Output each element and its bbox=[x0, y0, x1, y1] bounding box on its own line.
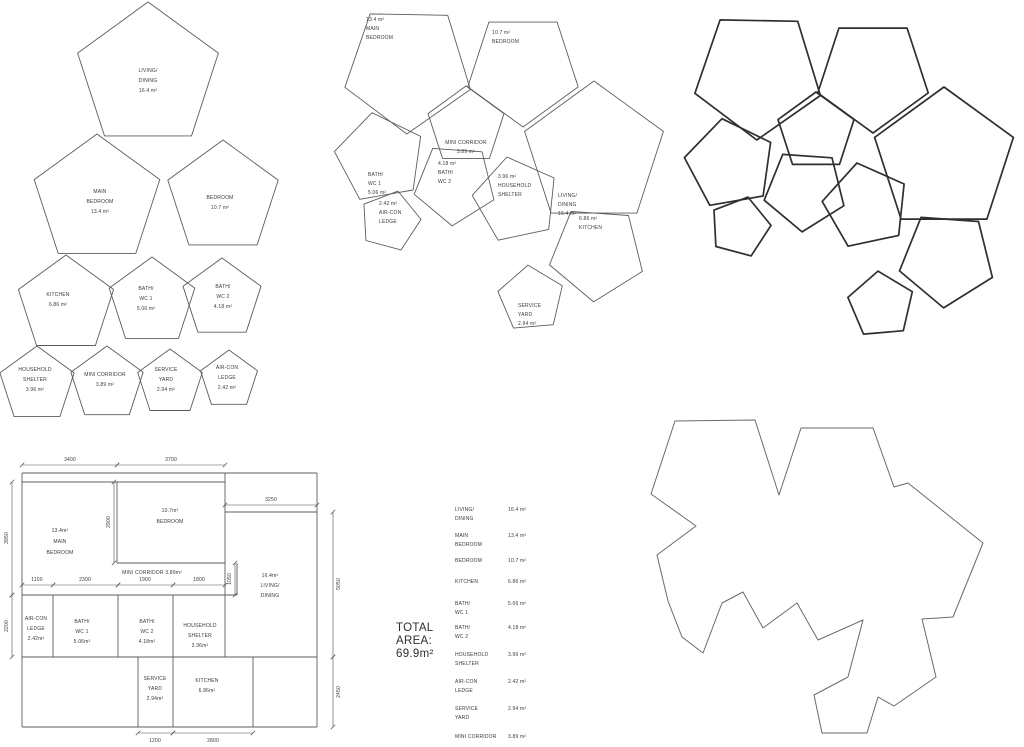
exploded-air-con-ledge: AIR-CONLEDGE2.42 m² bbox=[201, 350, 258, 404]
room-label-household-shelter-line-1: HOUSEHOLD bbox=[183, 623, 217, 629]
label-air-con-ledge-line-2: AIR-CON bbox=[379, 210, 402, 216]
dim-label-1900-line-1: 1900 bbox=[139, 577, 151, 583]
label-air-con-ledge-line-3: LEDGE bbox=[379, 219, 397, 225]
area-row-label-line-1: SERVICE bbox=[455, 706, 479, 712]
assembled-mini-corridor: MINI CORRIDOR3.89 m² bbox=[428, 86, 504, 158]
room-label-kitchen-line-2: 6.86m² bbox=[199, 688, 216, 694]
dim-label-1100-line-1: 1100 bbox=[31, 577, 43, 583]
assembled-kitchen: 6.86 m²KITCHEN bbox=[550, 211, 643, 302]
pentagon-mini-corridor bbox=[71, 346, 143, 415]
pentagon-bath-wc-1 bbox=[684, 119, 770, 206]
label-household-shelter-line-3: SHELTER bbox=[498, 192, 522, 198]
area-row-2: MAINBEDROOM13.4 m² bbox=[455, 533, 526, 548]
label-main-bedroom-line-1: MAIN bbox=[93, 189, 106, 195]
label-bath-wc-1-line-3: 5.06 m² bbox=[137, 306, 155, 312]
exploded-main-bedroom: MAINBEDROOM13.4 m² bbox=[34, 134, 160, 253]
area-row-label-line-1: BEDROOM bbox=[455, 558, 482, 564]
area-row-1: LIVING/DINING16.4 m² bbox=[455, 507, 526, 522]
label-bath-wc-1-line-3: 5.06 m² bbox=[368, 190, 386, 196]
label-household-shelter-line-1: HOUSEHOLD bbox=[18, 367, 52, 373]
pentagon-bath-wc-2 bbox=[764, 154, 844, 232]
label-mini-corridor-line-1: MINI CORRIDOR bbox=[445, 140, 487, 146]
label-bath-wc-2-line-1: 4.18 m² bbox=[438, 161, 456, 167]
area-row-value-line-1: 13.4 m² bbox=[508, 533, 526, 539]
assembled-service-yard: SERVICEYARD2.94 m² bbox=[498, 265, 562, 328]
area-row-value-line-1: 10.7 m² bbox=[508, 558, 526, 564]
area-row-3: BEDROOM10.7 m² bbox=[455, 558, 526, 564]
dim-label-1800-line-1: 1800 bbox=[193, 577, 205, 583]
label-household-shelter-line-1: 3.96 m² bbox=[498, 174, 516, 180]
dim-label-2800-line-1: 2800 bbox=[207, 738, 219, 744]
area-row-label-line-2: LEDGE bbox=[455, 688, 473, 694]
exploded-kitchen: KITCHEN6.86 m² bbox=[18, 255, 113, 346]
exploded-view: LIVING/DINING16.4 m²MAINBEDROOM13.4 m²BE… bbox=[0, 2, 278, 417]
label-air-con-ledge-line-3: 2.42 m² bbox=[218, 385, 236, 391]
outline-cluster-view bbox=[684, 20, 1013, 334]
room-label-bath-wc-2-line-3: 4.18m² bbox=[139, 639, 156, 645]
pentagon-main-bedroom bbox=[695, 20, 821, 140]
label-main-bedroom-line-1: 13.4 m² bbox=[366, 17, 384, 23]
label-household-shelter-line-2: SHELTER bbox=[23, 377, 47, 383]
area-table: LIVING/DINING16.4 m²MAINBEDROOM13.4 m²BE… bbox=[455, 507, 526, 740]
label-household-shelter-line-2: HOUSEHOLD bbox=[498, 183, 532, 189]
dim-2800: 2800 bbox=[171, 731, 255, 744]
dim-label-3950-line-1: 3950 bbox=[4, 532, 10, 544]
outline-service-yard bbox=[848, 271, 912, 334]
room-label-living-dining-line-3: DINING bbox=[261, 593, 280, 599]
assembled-bedroom: 10.7 m²BEDROOM bbox=[468, 22, 578, 127]
label-service-yard-line-3: 2.94 m² bbox=[518, 321, 536, 327]
outline-mini-corridor bbox=[778, 92, 854, 164]
label-air-con-ledge-line-1: 2.42 m² bbox=[379, 201, 397, 207]
area-row-label-line-1: AIR-CON bbox=[455, 679, 478, 685]
label-bedroom-line-2: BEDROOM bbox=[492, 39, 519, 45]
drawing-canvas: LIVING/DINING16.4 m²MAINBEDROOM13.4 m²BE… bbox=[0, 0, 1024, 747]
pentagon-bedroom bbox=[168, 140, 278, 245]
area-row-7: HOUSEHOLDSHELTER3.96 m² bbox=[455, 652, 526, 667]
assembled-bath-wc-2: 4.18 m²BATH/WC 2 bbox=[414, 148, 494, 226]
label-kitchen-line-1: KITCHEN bbox=[46, 292, 69, 298]
area-row-label-line-1: LIVING/ bbox=[455, 507, 474, 513]
pentagon-mini-corridor bbox=[778, 92, 854, 164]
area-row-10: MINI CORRIDOR3.89 m² bbox=[455, 734, 526, 740]
label-mini-corridor-line-2: 3.89 m² bbox=[96, 382, 114, 388]
area-row-8: AIR-CONLEDGE2.42 m² bbox=[455, 679, 526, 694]
label-main-bedroom-line-2: BEDROOM bbox=[86, 199, 113, 205]
pentagon-living-dining bbox=[525, 81, 664, 213]
exploded-mini-corridor: MINI CORRIDOR3.89 m² bbox=[71, 346, 143, 415]
outline-bedroom bbox=[818, 28, 928, 133]
room-label-household-shelter-line-3: 3.96m² bbox=[192, 643, 209, 649]
area-row-value-line-1: 16.4 m² bbox=[508, 507, 526, 513]
label-bedroom-line-1: BEDROOM bbox=[206, 195, 233, 201]
exploded-household-shelter: HOUSEHOLDSHELTER3.96 m² bbox=[0, 346, 74, 417]
dim-1200: 1200 bbox=[136, 731, 175, 744]
label-air-con-ledge-line-2: LEDGE bbox=[218, 375, 236, 381]
dim-2300: 2300 bbox=[51, 577, 120, 587]
label-mini-corridor-line-1: MINI CORRIDOR bbox=[84, 372, 126, 378]
area-row-label-line-1: BATH/ bbox=[455, 601, 471, 607]
label-main-bedroom-line-2: MAIN bbox=[366, 26, 379, 32]
label-service-yard-line-1: SERVICE bbox=[518, 303, 542, 309]
room-label-main-bedroom-line-1: 13.4m² bbox=[52, 528, 69, 534]
area-row-value-line-1: 4.18 m² bbox=[508, 625, 526, 631]
area-row-value-line-1: 6.86 m² bbox=[508, 579, 526, 585]
room-label-service-yard-line-2: YARD bbox=[148, 686, 162, 692]
dim-label-2300-line-1: 2300 bbox=[79, 577, 91, 583]
room-label-air-con-ledge-line-2: LEDGE bbox=[27, 626, 45, 632]
area-row-label-line-1: BATH/ bbox=[455, 625, 471, 631]
pentagon-living-dining bbox=[875, 87, 1014, 219]
dim-label-2200-line-1: 2200 bbox=[4, 620, 10, 632]
dim-1900: 1900 bbox=[116, 577, 175, 587]
label-bath-wc-2-line-3: WC 2 bbox=[438, 179, 451, 185]
label-kitchen-line-2: 6.86 m² bbox=[49, 302, 67, 308]
dim-label-1050-line-1: 1050 bbox=[227, 573, 233, 585]
assembled-living-dining: LIVING/DINING16.4 m² bbox=[525, 81, 664, 217]
label-bedroom-line-2: 10.7 m² bbox=[211, 205, 229, 211]
label-bath-wc-2-line-1: BATH/ bbox=[215, 284, 231, 290]
assembled-bath-wc-1: BATH/WC 15.06 m² bbox=[334, 113, 420, 200]
pentagon-house-drawing: LIVING/DINING16.4 m²MAINBEDROOM13.4 m²BE… bbox=[0, 0, 1024, 747]
dim-3250: 3250 bbox=[223, 497, 319, 507]
label-living-dining-line-2: DINING bbox=[139, 78, 158, 84]
dim-5050: 5050 bbox=[331, 510, 342, 659]
exploded-living-dining: LIVING/DINING16.4 m² bbox=[78, 2, 219, 136]
dim-1100: 1100 bbox=[20, 577, 55, 587]
label-bath-wc-1-line-1: BATH/ bbox=[368, 172, 384, 178]
outline-bath-wc-1 bbox=[684, 119, 770, 206]
label-service-yard-line-1: SERVICE bbox=[154, 367, 178, 373]
room-label-bath-wc-2-line-2: WC 2 bbox=[140, 629, 153, 635]
floor-plan: 3400370032503950220050502450290010501100… bbox=[4, 457, 342, 744]
dim-1800: 1800 bbox=[171, 577, 227, 587]
area-row-value-line-1: 3.96 m² bbox=[508, 652, 526, 658]
exploded-bath-wc-1: BATH/WC 15.06 m² bbox=[109, 257, 195, 338]
room-label-main-bedroom-line-2: MAIN bbox=[53, 539, 66, 545]
area-row-9: SERVICEYARD2.94 m² bbox=[455, 706, 526, 721]
label-kitchen-line-1: 6.86 m² bbox=[579, 216, 597, 222]
label-bath-wc-2-line-2: WC 2 bbox=[216, 294, 229, 300]
room-label-service-yard-line-3: 2.94m² bbox=[147, 696, 164, 702]
room-label-living-dining-line-1: 16.4m² bbox=[262, 573, 279, 579]
room-label-bath-wc-1-line-3: 5.06m² bbox=[74, 639, 91, 645]
dim-label-1200-line-1: 1200 bbox=[149, 738, 161, 744]
room-label-air-con-ledge-line-3: 2.42m² bbox=[28, 636, 45, 642]
dim-1050: 1050 bbox=[227, 561, 237, 597]
room-label-bedroom-line-1: 10.7m² bbox=[162, 508, 179, 514]
pentagon-main-bedroom bbox=[345, 14, 471, 134]
label-household-shelter-line-3: 3.96 m² bbox=[26, 387, 44, 393]
outline-main-bedroom bbox=[695, 20, 821, 140]
pentagon-air-con-ledge bbox=[714, 197, 771, 256]
silhouette-view bbox=[651, 420, 983, 733]
pentagon-household-shelter bbox=[822, 163, 904, 246]
assembled-air-con-ledge: 2.42 m²AIR-CONLEDGE bbox=[364, 191, 421, 250]
total-line-1: TOTAL bbox=[396, 622, 434, 635]
area-row-6: BATH/WC 24.18 m² bbox=[455, 625, 526, 640]
dim-label-3250-line-1: 3250 bbox=[265, 497, 277, 503]
label-living-dining-line-1: LIVING/ bbox=[558, 193, 577, 199]
area-row-value-line-1: 3.89 m² bbox=[508, 734, 526, 740]
outline-bath-wc-2 bbox=[764, 154, 844, 232]
area-row-value-line-1: 5.06 m² bbox=[508, 601, 526, 607]
dim-3400: 3400 bbox=[20, 457, 119, 467]
dim-2900: 2900 bbox=[106, 480, 116, 565]
exploded-service-yard: SERVICEYARD2.94 m² bbox=[138, 349, 203, 411]
dim-3700: 3700 bbox=[115, 457, 227, 467]
label-service-yard-line-2: YARD bbox=[518, 312, 532, 318]
label-air-con-ledge-line-1: AIR-CON bbox=[216, 365, 239, 371]
area-row-label-line-2: WC 2 bbox=[455, 634, 468, 640]
dim-label-2900-line-1: 2900 bbox=[106, 516, 112, 528]
room-label-bath-wc-1-line-2: WC 1 bbox=[75, 629, 88, 635]
area-row-4: KITCHEN6.86 m² bbox=[455, 579, 526, 585]
dim-label-5050-line-1: 5050 bbox=[336, 578, 342, 590]
area-row-label-line-2: WC 1 bbox=[455, 610, 468, 616]
pentagon-bedroom bbox=[818, 28, 928, 133]
area-row-label-line-1: MINI CORRIDOR bbox=[455, 734, 497, 740]
area-row-label-line-1: HOUSEHOLD bbox=[455, 652, 489, 658]
outline-air-con-ledge bbox=[714, 197, 771, 256]
silhouette-outline bbox=[651, 420, 983, 733]
area-row-label-line-2: YARD bbox=[455, 715, 469, 721]
pentagon-kitchen bbox=[18, 255, 113, 346]
pentagon-mini-corridor bbox=[428, 86, 504, 158]
label-living-dining-line-2: DINING bbox=[558, 202, 577, 208]
dim-label-3700-line-1: 3700 bbox=[165, 457, 177, 463]
area-row-value-line-1: 2.42 m² bbox=[508, 679, 526, 685]
room-label-main-bedroom-line-3: BEDROOM bbox=[46, 550, 73, 556]
dim-2450: 2450 bbox=[331, 655, 342, 729]
dim-label-2450-line-1: 2450 bbox=[336, 686, 342, 698]
outline-living-dining bbox=[875, 87, 1014, 219]
label-bath-wc-1-line-2: WC 1 bbox=[368, 181, 381, 187]
room-label-service-yard-line-1: SERVICE bbox=[143, 676, 167, 682]
pentagon-service-yard bbox=[848, 271, 912, 334]
label-service-yard-line-2: YARD bbox=[159, 377, 173, 383]
area-row-5: BATH/WC 15.06 m² bbox=[455, 601, 526, 616]
pentagon-kitchen bbox=[900, 217, 993, 308]
room-label-kitchen-line-1: KITCHEN bbox=[195, 678, 218, 684]
label-service-yard-line-3: 2.94 m² bbox=[157, 387, 175, 393]
room-label-bath-wc-1-line-1: BATH/ bbox=[74, 619, 90, 625]
assembled-household-shelter: 3.96 m²HOUSEHOLDSHELTER bbox=[472, 157, 554, 240]
label-kitchen-line-2: KITCHEN bbox=[579, 225, 602, 231]
label-bedroom-line-1: 10.7 m² bbox=[492, 30, 510, 36]
pentagon-service-yard bbox=[498, 265, 562, 328]
assembled-view: 13.4 m²MAINBEDROOM10.7 m²BEDROOMMINI COR… bbox=[334, 14, 663, 328]
label-bath-wc-1-line-1: BATH/ bbox=[138, 286, 154, 292]
dim-3950: 3950 bbox=[4, 480, 14, 597]
area-row-value-line-1: 2.94 m² bbox=[508, 706, 526, 712]
assembled-main-bedroom: 13.4 m²MAINBEDROOM bbox=[345, 14, 471, 134]
outline-household-shelter bbox=[822, 163, 904, 246]
label-bath-wc-1-line-2: WC 1 bbox=[139, 296, 152, 302]
room-label-household-shelter-line-2: SHELTER bbox=[188, 633, 212, 639]
room-label-living-dining-line-2: LIVING/ bbox=[260, 583, 279, 589]
label-bath-wc-2-line-2: BATH/ bbox=[438, 170, 454, 176]
dim-label-3400-line-1: 3400 bbox=[64, 457, 76, 463]
total-area-block: TOTAL AREA: 69.9m² bbox=[396, 622, 434, 661]
label-main-bedroom-line-3: 13.4 m² bbox=[91, 209, 109, 215]
exploded-bath-wc-2: BATH/WC 24.18 m² bbox=[183, 258, 261, 332]
room-label-air-con-ledge-line-1: AIR-CON bbox=[25, 616, 48, 622]
area-row-label-line-1: MAIN bbox=[455, 533, 468, 539]
area-row-label-line-2: BEDROOM bbox=[455, 542, 482, 548]
area-row-label-line-2: SHELTER bbox=[455, 661, 479, 667]
pentagon-bedroom bbox=[468, 22, 578, 127]
label-living-dining-line-1: LIVING/ bbox=[138, 68, 157, 74]
label-main-bedroom-line-3: BEDROOM bbox=[366, 35, 393, 41]
label-living-dining-line-3: 16.4 m² bbox=[139, 88, 157, 94]
area-row-label-line-1: KITCHEN bbox=[455, 579, 478, 585]
label-bath-wc-2-line-3: 4.18 m² bbox=[214, 304, 232, 310]
room-label-mini-corridor-line-1: MINI CORRIDOR 3.89m² bbox=[122, 570, 182, 576]
total-line-2: AREA: bbox=[396, 635, 434, 648]
exploded-bedroom: BEDROOM10.7 m² bbox=[168, 140, 278, 245]
outline-kitchen bbox=[900, 217, 993, 308]
room-label-bath-wc-2-line-1: BATH/ bbox=[139, 619, 155, 625]
area-row-label-line-2: DINING bbox=[455, 516, 474, 522]
room-label-bedroom-line-2: BEDROOM bbox=[156, 519, 183, 525]
total-line-3: 69.9m² bbox=[396, 648, 434, 661]
pentagon-household-shelter bbox=[472, 157, 554, 240]
dim-2200: 2200 bbox=[4, 593, 14, 659]
